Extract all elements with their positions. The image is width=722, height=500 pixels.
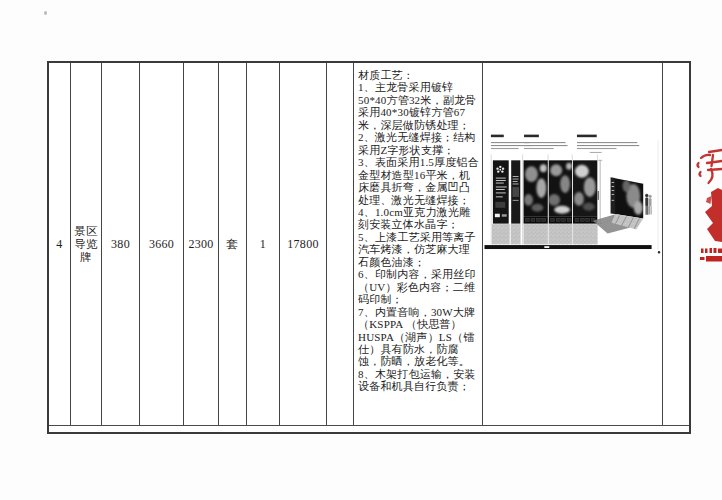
cell-seq: 4 <box>49 63 71 425</box>
product-render-image <box>483 120 661 260</box>
seq-value: 4 <box>56 237 62 252</box>
width-value: 380 <box>111 237 130 252</box>
red-seal-stamp <box>694 146 722 274</box>
cell-item-name: 景区导览牌 <box>71 63 102 425</box>
cell-width: 380 <box>102 63 140 425</box>
cell-depth: 2300 <box>184 63 219 425</box>
sign-panel-front <box>493 160 509 223</box>
item-name: 景区导览牌 <box>74 225 98 264</box>
quotation-table: 4 景区导览牌 380 3660 2300 套 1 17800 材质工艺： 1、… <box>47 61 691 434</box>
sign-panel-map <box>524 160 548 223</box>
cell-product-image <box>483 63 663 425</box>
cell-spec: 材质工艺： 1、主龙骨采用镀锌50*40方管32米，副龙骨采用40*30镀锌方管… <box>354 63 483 425</box>
cell-amount: 17800 <box>280 63 327 425</box>
human-figure-icon <box>645 194 648 215</box>
seal-footer-marks <box>700 248 722 262</box>
scale-bar <box>484 245 651 249</box>
cell-empty-right <box>663 63 689 425</box>
unit-value: 套 <box>226 236 238 253</box>
seal-strokes <box>698 150 722 183</box>
height-value: 3660 <box>149 237 174 252</box>
cell-height: 3660 <box>140 63 184 425</box>
human-figure-icon <box>649 195 652 215</box>
seal-blob <box>706 196 712 204</box>
seal-blob <box>705 188 722 242</box>
table-row: 4 景区导览牌 380 3660 2300 套 1 17800 材质工艺： 1、… <box>49 63 689 426</box>
sign-panel-map <box>548 160 572 223</box>
annotation-block <box>524 135 568 149</box>
scan-artifact <box>658 251 660 253</box>
cell-quantity: 1 <box>247 63 280 425</box>
spec-text: 材质工艺： 1、主龙骨采用镀锌50*40方管32米，副龙骨采用40*30镀锌方管… <box>354 63 482 393</box>
dimension-label <box>598 191 599 200</box>
cell-unit: 套 <box>219 63 247 425</box>
annotation-block <box>577 135 639 153</box>
sign-panel-narrow <box>511 160 520 223</box>
sign-panel-map <box>573 160 597 223</box>
quantity-value: 1 <box>260 237 266 252</box>
scanned-document-page: 4 景区导览牌 380 3660 2300 套 1 17800 材质工艺： 1、… <box>0 0 722 500</box>
scan-artifact <box>44 11 47 15</box>
amount-value: 17800 <box>287 237 319 252</box>
depth-value: 2300 <box>188 237 213 252</box>
cell-empty <box>327 63 354 425</box>
concrete-bases <box>492 224 597 244</box>
